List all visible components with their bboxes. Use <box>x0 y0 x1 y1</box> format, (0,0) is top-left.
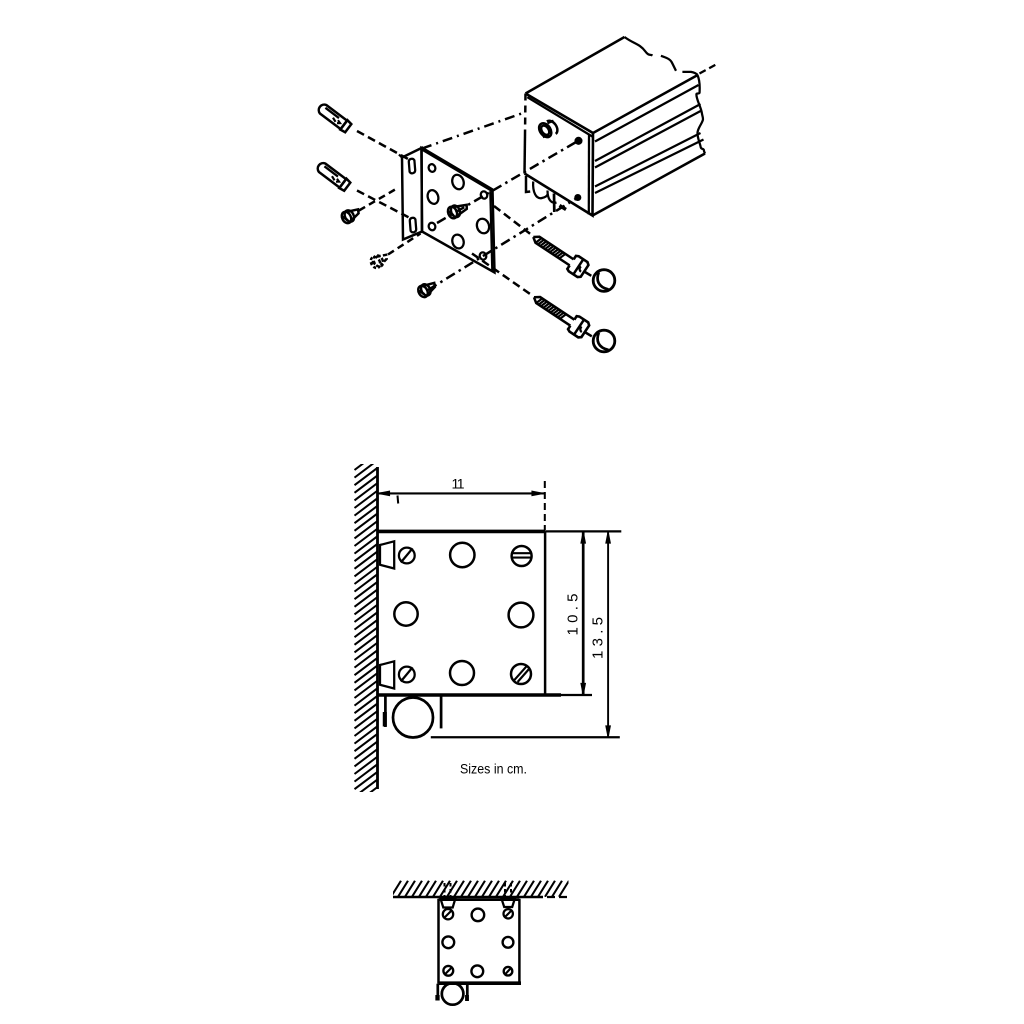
svg-text:13.5: 13.5 <box>590 617 607 659</box>
svg-text:11: 11 <box>452 476 465 492</box>
svg-text:10.5: 10.5 <box>565 594 582 636</box>
svg-text:Sizes in cm.: Sizes in cm. <box>460 761 527 777</box>
